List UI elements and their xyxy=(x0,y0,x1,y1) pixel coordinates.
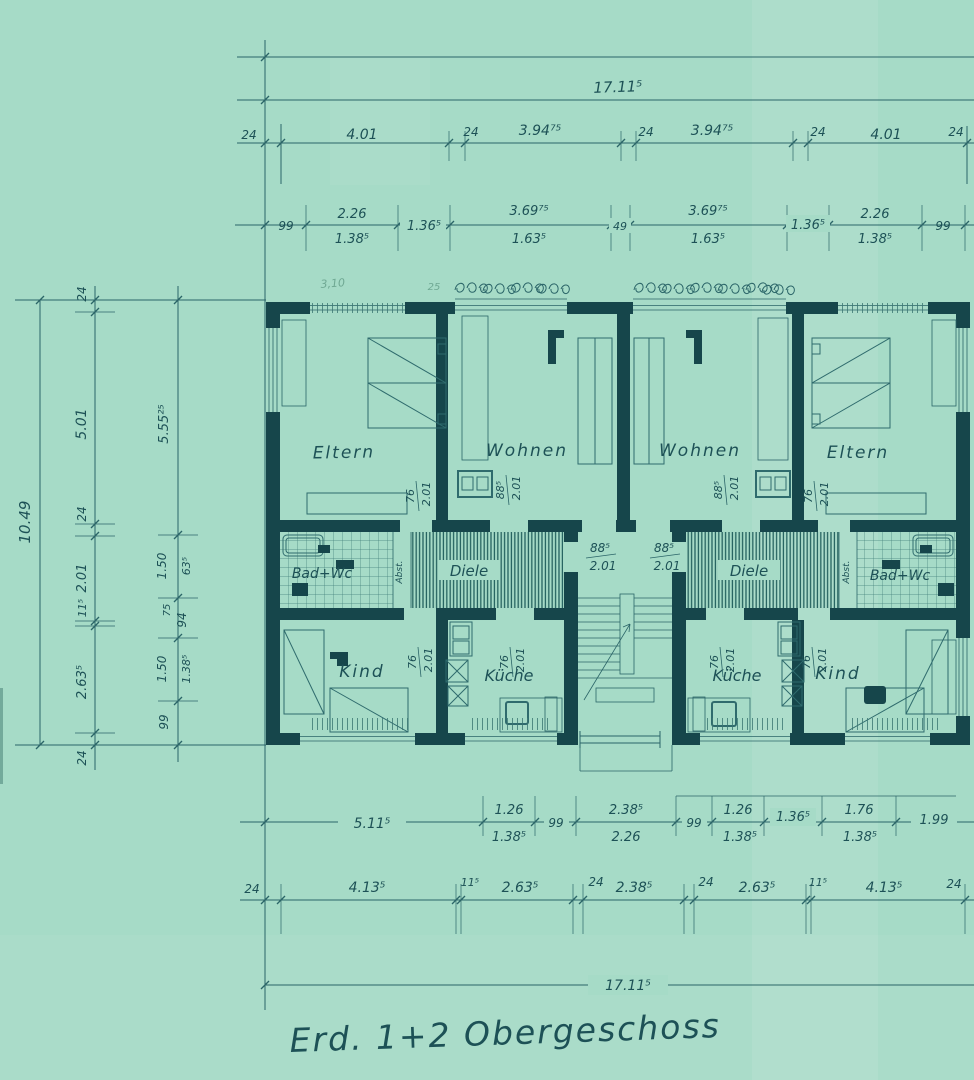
svg-text:2.01: 2.01 xyxy=(816,648,829,673)
svg-text:76: 76 xyxy=(708,655,721,669)
dim-label: 1.38⁵ xyxy=(843,830,877,845)
dim-label: 1.63⁵ xyxy=(691,232,725,247)
svg-text:88⁵: 88⁵ xyxy=(712,481,725,499)
scan-edge-artifact xyxy=(0,688,3,784)
dim-label: 24 xyxy=(698,875,713,889)
dim-label: 3.94⁷⁵ xyxy=(519,123,562,139)
room-label-kind-left: Kind xyxy=(339,662,384,682)
svg-text:76: 76 xyxy=(800,655,813,669)
dim-label: 99 xyxy=(278,219,293,233)
dim-label: 3.69⁷⁵ xyxy=(509,204,548,219)
svg-text:76: 76 xyxy=(498,655,511,669)
floor-plan-drawing: 17.11⁵ 24 4.01 24 3.94⁷⁵ 24 3.94⁷⁵ 24 4.… xyxy=(0,0,974,1080)
radiator-kueche-left xyxy=(470,718,550,730)
pencil-note: 25 xyxy=(428,282,441,293)
dim-label: 1.76 xyxy=(845,803,874,818)
dim-total-left: 10.49 xyxy=(16,501,34,544)
svg-text:88⁵: 88⁵ xyxy=(494,481,507,499)
dim-label: 1.38⁵ xyxy=(180,655,193,684)
room-label-abst-left: Abst. xyxy=(395,561,405,585)
room-label-wohnen-right: Wohnen xyxy=(659,441,741,461)
dim-label: 24 xyxy=(588,875,603,889)
window-sill-hatch-right xyxy=(840,303,926,313)
scan-light-bottom xyxy=(0,935,974,1080)
svg-text:76: 76 xyxy=(404,489,417,503)
dim-label: 1.36⁵ xyxy=(776,810,810,825)
dim-label: 24 xyxy=(75,286,89,301)
svg-text:2.01: 2.01 xyxy=(510,476,523,501)
dim-label: 1.38⁵ xyxy=(723,830,757,845)
dim-label: 4.01 xyxy=(346,127,377,143)
dim-label: 24 xyxy=(810,125,825,139)
radiator-kind-right xyxy=(848,718,940,730)
dim-label: 1.38⁵ xyxy=(858,232,892,247)
dim-label: 99 xyxy=(157,714,171,729)
dim-label: 2.01 xyxy=(75,564,90,593)
dim-label: 5.11⁵ xyxy=(354,816,391,832)
room-label-eltern-left: Eltern xyxy=(313,442,376,463)
dim-label: 99 xyxy=(686,816,701,830)
dim-label: 1.36⁵ xyxy=(791,218,825,233)
dim-label: 24 xyxy=(638,125,653,139)
dim-label: 24 xyxy=(75,506,89,521)
dim-label: 24 xyxy=(241,128,256,142)
dim-label: 11⁵ xyxy=(461,876,479,889)
dim-label: 99 xyxy=(935,219,950,233)
dim-label: 1.38⁵ xyxy=(492,830,526,845)
svg-text:76: 76 xyxy=(802,489,815,503)
dim-label: 2.26 xyxy=(861,207,890,222)
dim-label: 24 xyxy=(244,882,259,896)
svg-text:76: 76 xyxy=(406,655,419,669)
dim-label: 99 xyxy=(548,816,563,830)
dim-label: 24 xyxy=(946,877,961,891)
dim-label: 1.50 xyxy=(155,655,169,682)
dim-label: 3.94⁷⁵ xyxy=(691,123,734,139)
room-label-bad-right: Bad+Wc xyxy=(870,568,931,584)
svg-text:2.01: 2.01 xyxy=(420,482,433,507)
dim-label: 1.36⁵ xyxy=(407,219,441,234)
dim-label: 1.26 xyxy=(724,803,753,818)
dim-label: 2.26 xyxy=(612,830,641,845)
dim-label: 3.69⁷⁵ xyxy=(688,204,727,219)
dim-label: 63⁵ xyxy=(180,557,193,575)
dim-label: 5.01 xyxy=(74,408,90,439)
dim-total-bottom: 17.11⁵ xyxy=(605,978,651,994)
svg-text:2.01: 2.01 xyxy=(422,648,435,673)
radiator-kind-left xyxy=(312,718,408,730)
room-label-wohnen-left: Wohnen xyxy=(486,441,568,461)
dim-label: 1.38⁵ xyxy=(335,232,369,247)
room-label-abst-right: Abst. xyxy=(842,561,852,585)
room-label-diele-left: Diele xyxy=(450,562,488,580)
hall-left-door-gap xyxy=(563,542,579,572)
dim-label: 11⁵ xyxy=(76,599,89,617)
dim-label: 2.38⁵ xyxy=(616,880,653,896)
dim-label: 4.13⁵ xyxy=(349,880,386,896)
scan-light-patch xyxy=(330,55,430,185)
svg-text:2.01: 2.01 xyxy=(590,559,617,573)
svg-text:2.01: 2.01 xyxy=(654,559,681,573)
dim-label: 1.50 xyxy=(155,552,169,579)
blueprint-sheet: 17.11⁵ 24 4.01 24 3.94⁷⁵ 24 3.94⁷⁵ 24 4.… xyxy=(0,0,974,1080)
dim-label: 1.99 xyxy=(920,813,949,828)
room-label-diele-right: Diele xyxy=(730,562,768,580)
pencil-note: 3,10 xyxy=(320,276,345,291)
svg-text:88⁵: 88⁵ xyxy=(654,541,674,555)
dim-label: 24 xyxy=(463,125,478,139)
dim-label: 4.13⁵ xyxy=(866,880,903,896)
dim-label: 24 xyxy=(75,750,89,765)
dim-label: 94 xyxy=(175,612,189,627)
svg-text:2.01: 2.01 xyxy=(514,648,527,673)
dim-label: 2.38⁵ xyxy=(609,803,643,818)
dim-label: 75 xyxy=(162,604,173,617)
dim-label: 4.01 xyxy=(870,127,901,143)
svg-text:2.01: 2.01 xyxy=(728,476,741,501)
room-label-bad-left: Bad+Wc xyxy=(292,566,353,582)
dim-label: 1.26 xyxy=(495,803,524,818)
dim-label: 5.55²⁵ xyxy=(157,404,172,443)
window-sill-hatch-left xyxy=(312,303,403,313)
dim-label: 2.63⁵ xyxy=(502,880,539,896)
dim-label: 11⁵ xyxy=(809,876,827,889)
dim-label: 24 xyxy=(948,125,963,139)
radiator-kueche-right xyxy=(704,718,784,730)
svg-text:88⁵: 88⁵ xyxy=(590,541,610,555)
svg-text:2.01: 2.01 xyxy=(724,648,737,673)
room-label-eltern-right: Eltern xyxy=(827,443,889,463)
dim-label: 2.26 xyxy=(338,207,367,222)
dim-label: 2.63⁵ xyxy=(75,665,90,699)
svg-text:2.01: 2.01 xyxy=(818,482,831,507)
dim-label: 2.63⁵ xyxy=(739,880,776,896)
dim-label: 49 xyxy=(613,220,627,233)
dim-total-top: 17.11⁵ xyxy=(593,77,643,97)
dim-label: 1.63⁵ xyxy=(512,232,546,247)
